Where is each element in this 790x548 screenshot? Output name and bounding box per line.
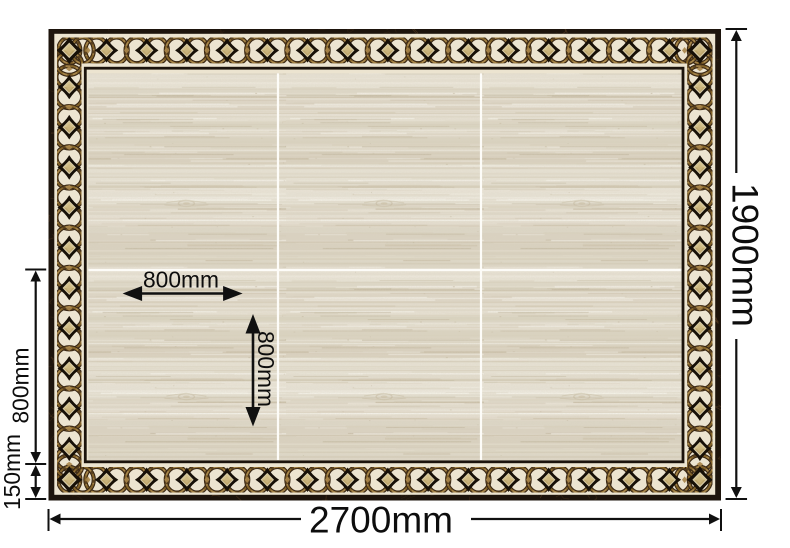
svg-text:800mm: 800mm [253,331,279,407]
svg-text:800mm: 800mm [8,347,34,423]
svg-text:800mm: 800mm [143,266,219,292]
svg-text:2700mm: 2700mm [309,500,453,541]
svg-text:1900mm: 1900mm [725,183,766,327]
svg-text:150mm: 150mm [0,434,25,510]
